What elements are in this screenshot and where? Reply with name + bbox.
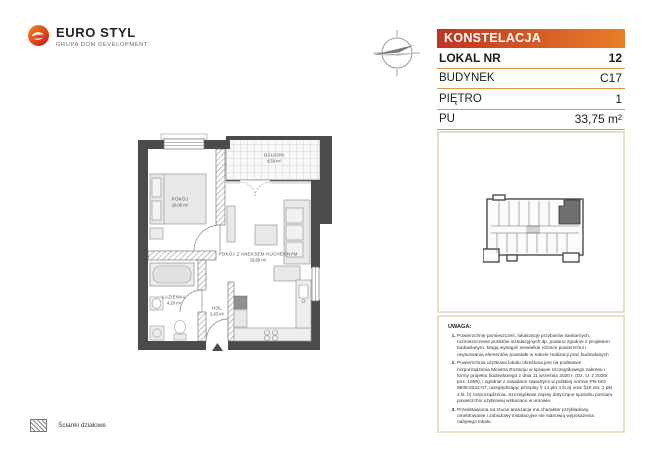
building-overview-plan (483, 193, 587, 267)
room-label-lazienka: ŁAZIENKA 4,20 m² (162, 294, 186, 305)
field-row-pu: PU 33,75 m² (437, 110, 625, 131)
field-value: C17 (600, 71, 622, 85)
washing-machine (150, 326, 164, 340)
fridge (234, 310, 247, 327)
brand-logo: EURO STYL GRUPA DOM DEVELOPMENT (28, 25, 148, 48)
bathtub (150, 263, 194, 286)
field-row-budynek: BUDYNEK C17 (437, 69, 625, 90)
apartment-floor-plan: POKÓJ 10,06 m² POKÓJ Z ANEKSEM KUCHENNYM… (128, 130, 338, 368)
field-label: PIĘTRO (439, 93, 482, 105)
notes-list: Powierzchnię pomieszczeń, lokalizację pr… (448, 334, 614, 426)
room-label-pokoj-z-aneksem: POKÓJ Z ANEKSEM KUCHENNYM 16,66 m² (218, 251, 297, 262)
field-row-lokal-nr: LOKAL NR 12 (437, 48, 625, 69)
unit-fields-table: LOKAL NR 12 BUDYNEK C17 PIĘTRO 1 PU 33,7… (437, 48, 625, 130)
window-top (161, 134, 207, 149)
field-value: 1 (615, 92, 622, 106)
note-item: Przedstawiona na rzucie aranżacja ma cha… (457, 408, 614, 427)
field-label: PU (439, 113, 455, 125)
field-label: BUDYNEK (439, 72, 495, 84)
notes-title: UWAGA: (448, 324, 614, 330)
tv-stand (227, 206, 235, 242)
field-value: 12 (609, 51, 622, 65)
toilet (174, 321, 186, 341)
room-label-pokoj: POKÓJ 10,06 m² (172, 196, 189, 207)
legend-label: Ścianki działowe (58, 422, 106, 429)
nightstand (150, 228, 163, 239)
room-label-hol: HOL 2,83 m² (210, 305, 224, 316)
note-item: Powierzchnia użytkowa lokalu określona j… (457, 361, 614, 405)
legend: Ścianki działowe (30, 419, 106, 432)
floor-plan-drawing (128, 130, 338, 368)
dining-table (274, 266, 300, 281)
note-item: Powierzchnię pomieszczeń, lokalizację pr… (457, 334, 614, 359)
washbasin (150, 297, 163, 310)
north-arrow-icon (368, 24, 426, 82)
eurostyl-logo-icon (28, 25, 49, 46)
project-name-banner: KONSTELACJA (437, 29, 625, 48)
field-row-pietro: PIĘTRO 1 (437, 89, 625, 110)
coffee-table (255, 225, 277, 245)
partition-wall-swatch (30, 419, 47, 432)
balcony-door (226, 181, 311, 197)
window-right (312, 267, 319, 301)
room-label-balkon: BALKON 4,50 m² (264, 152, 284, 163)
building-location-box (437, 131, 625, 313)
entrance-marker (212, 343, 223, 351)
field-value: 33,75 m² (575, 112, 622, 126)
notes-box: UWAGA: Powierzchnię pomieszczeń, lokaliz… (437, 315, 625, 433)
brand-tagline: GRUPA DOM DEVELOPMENT (56, 42, 148, 48)
kitchen-cabinet-tall (234, 296, 247, 309)
brand-name: EURO STYL (56, 26, 148, 39)
field-label: LOKAL NR (439, 51, 501, 65)
